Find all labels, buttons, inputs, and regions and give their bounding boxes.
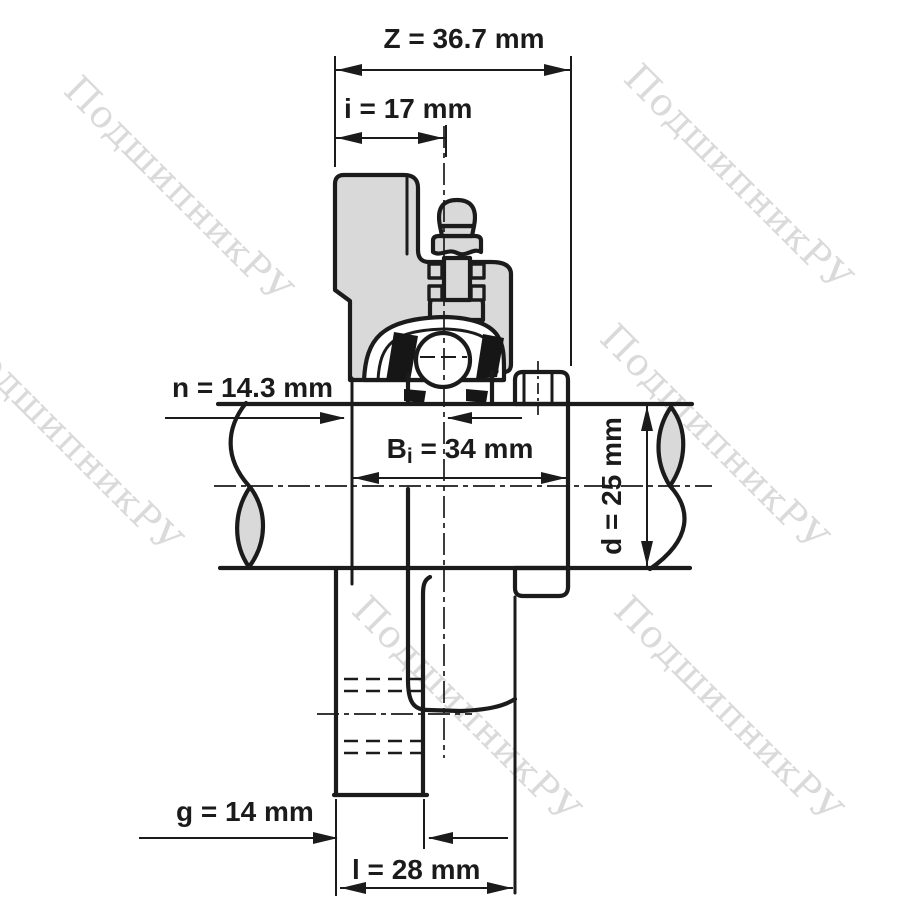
dim-label-g: g = 14 mm: [176, 796, 314, 827]
fitting-hex: [433, 236, 481, 254]
shaft-break-left-s: [231, 403, 249, 486]
fitting-thread-nub: [429, 264, 442, 278]
watermark-text: ПодшипникРУ: [56, 67, 302, 313]
fitting-thread-nub: [471, 264, 484, 278]
shaft-break-left-lens: [237, 487, 263, 567]
dim-d: d = 25 mm: [596, 405, 653, 567]
race-wedge-right: [466, 389, 488, 403]
fitting-shank: [444, 258, 470, 300]
arrow-left: [337, 64, 362, 76]
dim-bi: Bi = 34 mm: [353, 433, 567, 484]
fitting-thread-nub: [471, 286, 484, 300]
watermark-text: ПодшипникРУ: [616, 55, 862, 301]
dim-l: l = 28 mm: [340, 854, 513, 894]
arrow-right: [544, 64, 569, 76]
race-wedge-left: [404, 389, 426, 403]
shaft-break-right-s: [650, 486, 684, 569]
dim-label-d: d = 25 mm: [596, 417, 627, 555]
bearing-ball: [416, 333, 470, 387]
dim-i: i = 17 mm: [335, 93, 472, 157]
dim-label-n: n = 14.3 mm: [172, 372, 333, 403]
watermark-text: ПодшипникРУ: [606, 587, 852, 833]
collar-bottom: [515, 568, 568, 596]
dim-label-i: i = 17 mm: [344, 93, 472, 124]
fitting-thread-nub: [429, 286, 442, 300]
shaft-break-right-lens: [658, 407, 683, 486]
watermark-text: ПодшипникРУ: [0, 317, 192, 563]
dim-label-z: Z = 36.7 mm: [383, 23, 544, 54]
watermark-text: ПодшипникРУ: [592, 315, 838, 561]
technical-drawing: ПодшипникРУ ПодшипникРУ ПодшипникРУ Подш…: [0, 0, 900, 900]
dim-label-l: l = 28 mm: [352, 854, 480, 885]
dim-label-bi: Bi = 34 mm: [387, 433, 534, 468]
